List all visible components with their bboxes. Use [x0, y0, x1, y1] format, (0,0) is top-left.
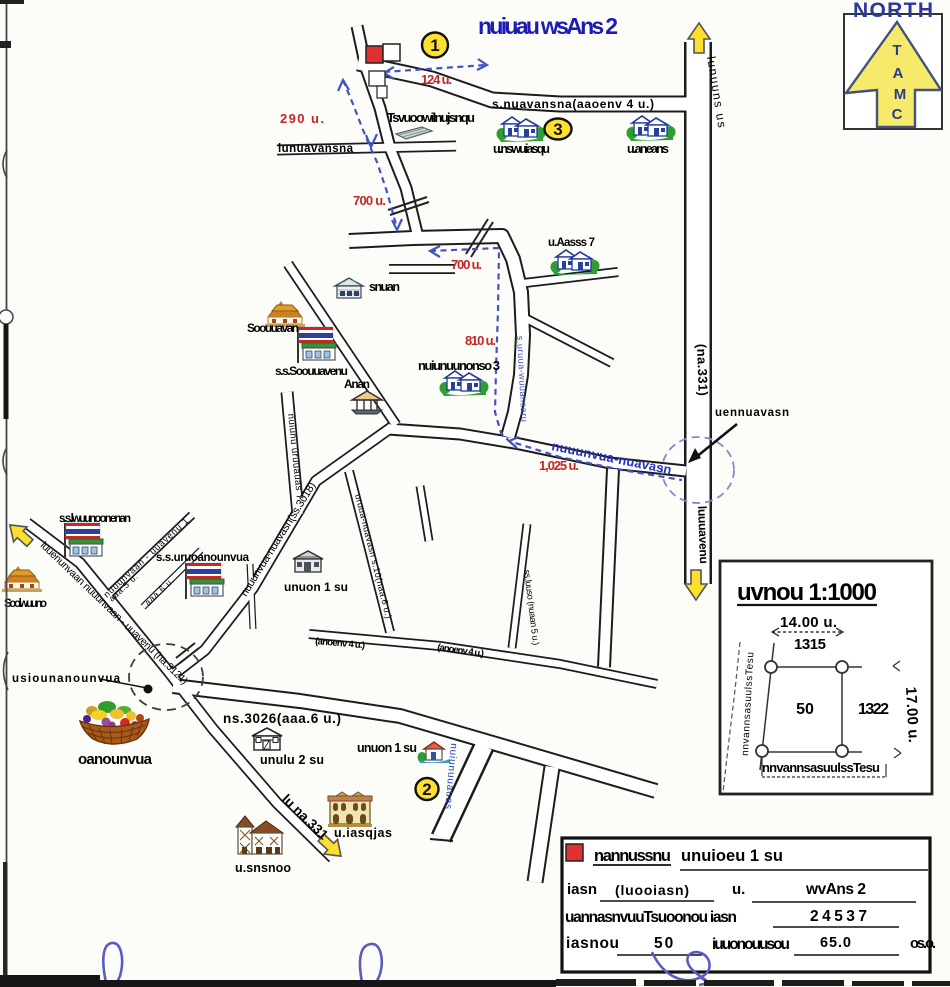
svg-text:700 u.: 700 u.: [451, 257, 482, 272]
svg-text:(luooiasn): (luooiasn): [615, 882, 689, 898]
svg-text:1322: 1322: [858, 701, 889, 718]
svg-text:iasnou: iasnou: [566, 935, 619, 952]
svg-text:A: A: [893, 65, 904, 82]
svg-text:u.iasqjas: u.iasqjas: [334, 826, 392, 840]
svg-text:3: 3: [553, 120, 562, 139]
svg-text:wvAns 2: wvAns 2: [805, 881, 866, 898]
svg-text:nuiunuunonso 3: nuiunuunonso 3: [418, 358, 500, 373]
svg-text:NORTH: NORTH: [853, 0, 933, 22]
svg-text:Soolwuuno: Soolwuuno: [4, 598, 47, 610]
svg-text:nnvannsasuulssTesu: nnvannsasuulssTesu: [762, 760, 880, 775]
svg-text:nannussnu: nannussnu: [594, 847, 671, 865]
svg-text:Tsvuoowilnujsnqu: Tsvuoowilnujsnqu: [387, 110, 475, 125]
svg-text:u.aneans: u.aneans: [627, 142, 669, 156]
svg-text:lunuavansna: lunuavansna: [278, 143, 354, 155]
svg-text:1315: 1315: [794, 636, 826, 653]
svg-text:T: T: [892, 42, 901, 59]
svg-text:uannasnvuuTsuoonou iasn: uannasnvuuTsuoonou iasn: [565, 909, 737, 926]
svg-text:uennuavasn: uennuavasn: [715, 407, 789, 419]
svg-text:u.Aasss 7: u.Aasss 7: [548, 237, 595, 249]
svg-text:124 u.: 124 u.: [421, 72, 452, 87]
svg-text:luuuavenu: luuuavenu: [695, 506, 711, 564]
svg-text:u.: u.: [732, 881, 745, 898]
svg-text:iasn: iasn: [567, 881, 597, 898]
svg-text:C: C: [892, 106, 903, 123]
svg-text:50: 50: [654, 935, 675, 952]
svg-text:810 u.: 810 u.: [465, 333, 496, 348]
svg-text:700 u.: 700 u.: [353, 193, 386, 208]
svg-text:(na.331): (na.331): [694, 344, 711, 396]
svg-text:oanounvua: oanounvua: [78, 751, 153, 768]
svg-text:1,025 u.: 1,025 u.: [539, 458, 579, 473]
svg-text:17.00 u.: 17.00 u.: [902, 686, 922, 743]
svg-text:s.nuavansna(aaoenv 4 u.): s.nuavansna(aaoenv 4 u.): [492, 97, 654, 111]
svg-text:50: 50: [796, 701, 814, 718]
svg-text:unuioeu 1 su: unuioeu 1 su: [681, 847, 783, 865]
svg-text:M: M: [894, 86, 907, 103]
svg-text:Soouuavan: Soouuavan: [247, 321, 299, 335]
svg-text:65.0: 65.0: [820, 935, 853, 951]
svg-text:u.snsnoo: u.snsnoo: [235, 861, 291, 875]
svg-text:iuuonouusou: iuuonouusou: [712, 936, 790, 953]
svg-text:Anan: Anan: [344, 377, 370, 391]
svg-text:s.s.Soouuavenu: s.s.Soouuavenu: [275, 364, 348, 378]
svg-text:snuan: snuan: [369, 280, 400, 294]
svg-text:unuon 1 su: unuon 1 su: [284, 580, 348, 594]
svg-text:u.nswuiasqu: u.nswuiasqu: [493, 142, 550, 156]
svg-text:uvnou 1:1000: uvnou 1:1000: [737, 579, 877, 606]
svg-text:ns.3026(aaa.6 u.): ns.3026(aaa.6 u.): [223, 711, 341, 726]
svg-text:unulu 2 su: unulu 2 su: [260, 753, 324, 767]
svg-text:unuon 1 su: unuon 1 su: [357, 741, 417, 755]
svg-text:290 u.: 290 u.: [280, 111, 324, 126]
svg-text:24537: 24537: [810, 908, 871, 925]
svg-text:os.o.: os.o.: [910, 936, 936, 952]
svg-text:nuiuau wsAns 2: nuiuau wsAns 2: [478, 13, 618, 39]
svg-text:1: 1: [430, 36, 439, 55]
svg-text:s.s.uruoanounvua: s.s.uruoanounvua: [156, 552, 250, 564]
svg-text:s.s.lwuunoonenan: s.s.lwuunoonenan: [59, 513, 131, 525]
svg-text:14.00 u.: 14.00 u.: [780, 614, 837, 631]
svg-text:2: 2: [422, 780, 431, 799]
